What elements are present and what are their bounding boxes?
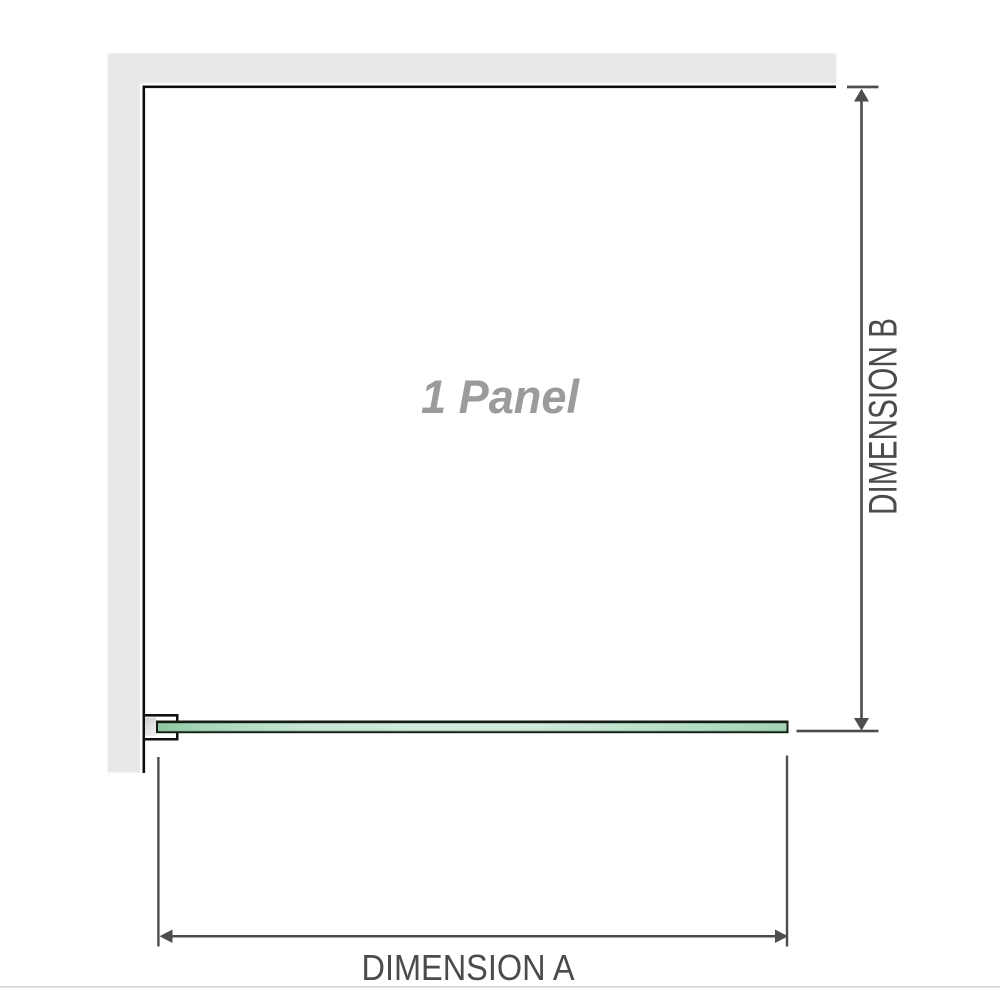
svg-text:DIMENSION B: DIMENSION B (861, 318, 905, 515)
svg-text:1 Panel: 1 Panel (421, 370, 580, 423)
svg-text:DIMENSION A: DIMENSION A (362, 947, 576, 988)
